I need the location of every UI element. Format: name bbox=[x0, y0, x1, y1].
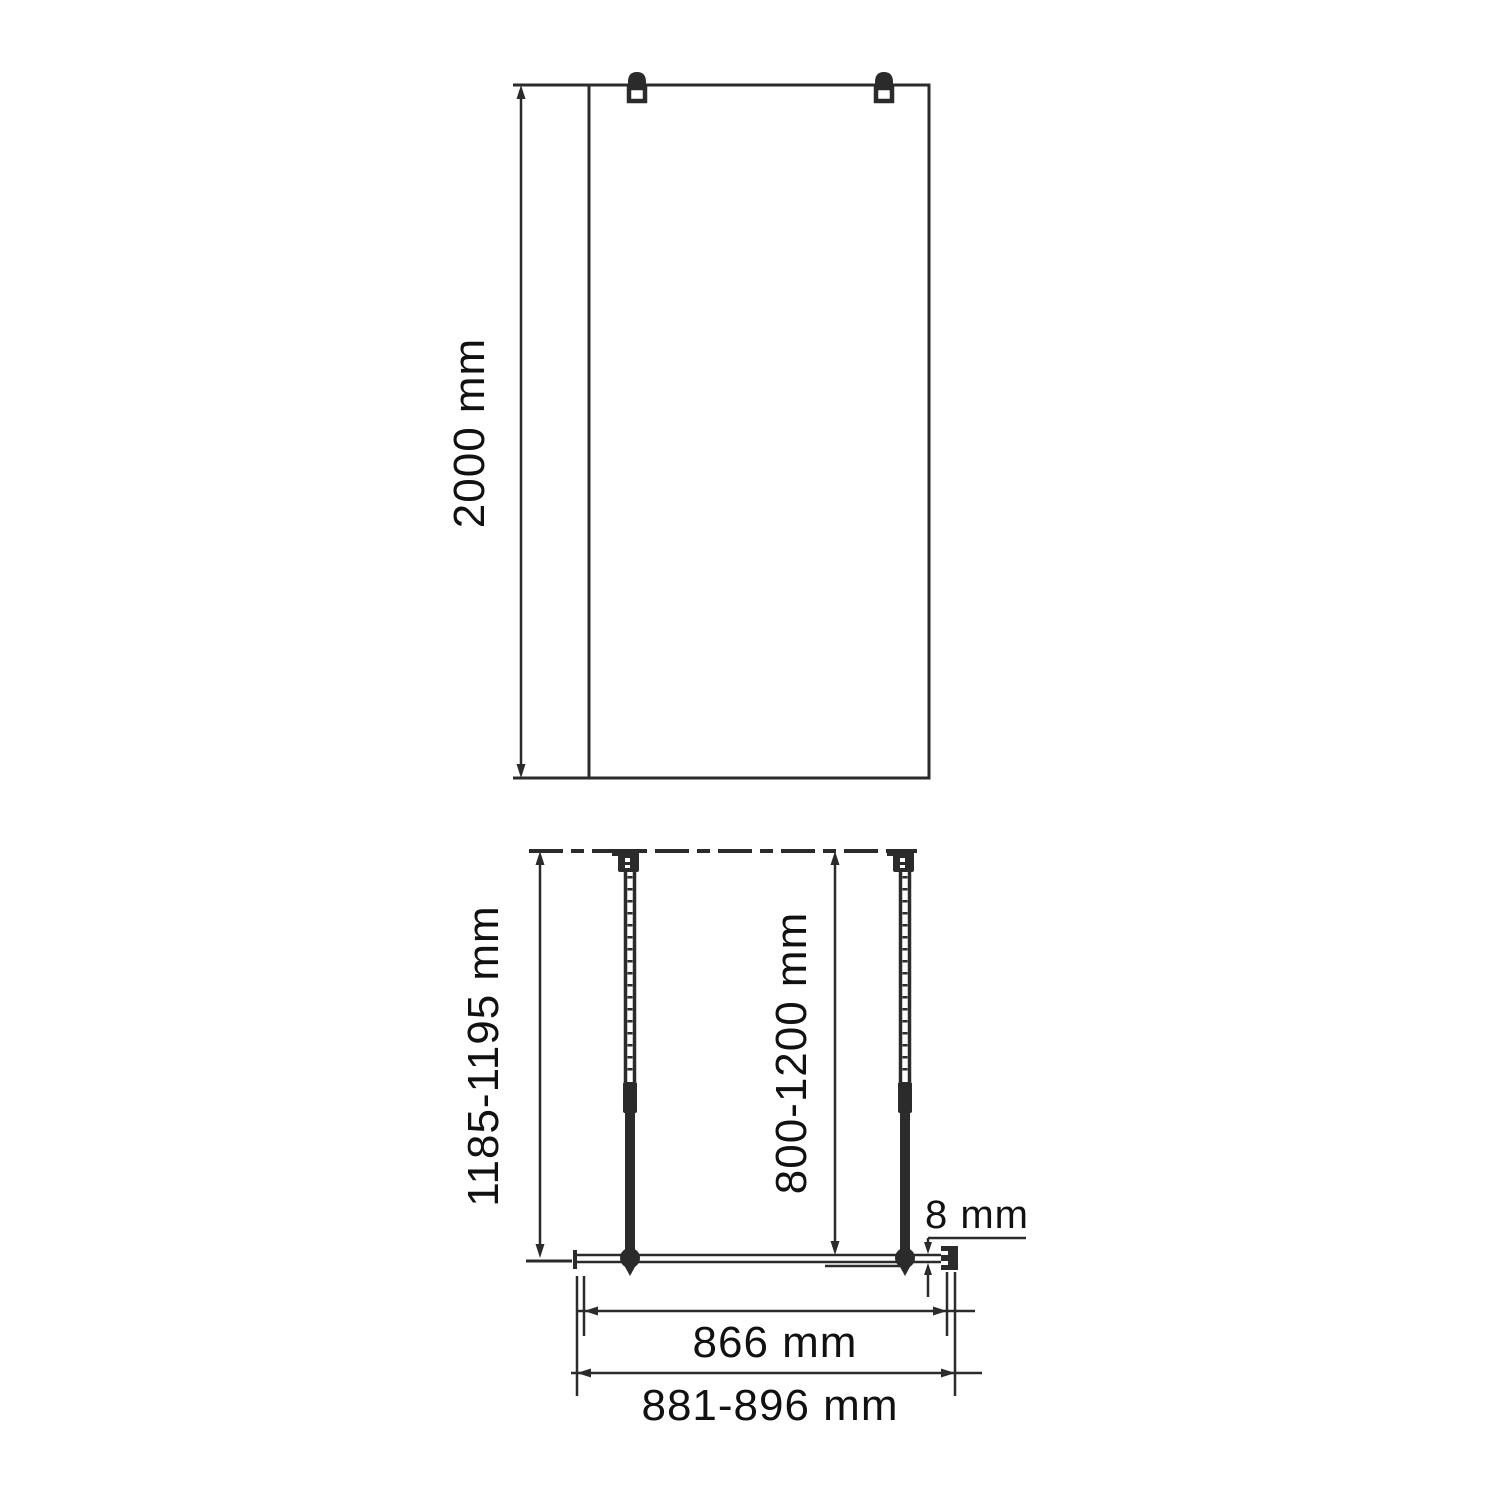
glass-width-dimension: 866 mm bbox=[578, 1272, 975, 1367]
wall-bracket-left bbox=[612, 849, 639, 872]
arrow-up-icon bbox=[536, 851, 545, 865]
bar-coupler bbox=[898, 1082, 912, 1113]
glass-width-label: 866 mm bbox=[693, 1318, 858, 1367]
support-bar-left bbox=[620, 872, 640, 1276]
bar-rod bbox=[900, 1113, 910, 1258]
height-dimension-label: 2000 mm bbox=[445, 338, 494, 528]
arrow-down-icon bbox=[924, 1242, 932, 1254]
depth-dimension-label: 1185-1195 mm bbox=[459, 905, 508, 1206]
wall-clamp-right bbox=[875, 72, 893, 101]
arrow-up-icon bbox=[517, 85, 526, 99]
drawing-canvas: 2000 mm bbox=[0, 0, 1500, 1500]
support-bar-right bbox=[895, 872, 915, 1276]
bar-coupler bbox=[623, 1082, 637, 1113]
front-view: 2000 mm bbox=[445, 72, 929, 778]
arrow-down-icon bbox=[536, 1244, 545, 1258]
clamp-knob-icon bbox=[628, 72, 646, 85]
glass-thickness-label: 8 mm bbox=[925, 1193, 1029, 1237]
bar-length-dimension: 800-1200 mm bbox=[767, 851, 840, 1255]
glass-end-cap bbox=[573, 1250, 577, 1269]
install-width-label: 881-896 mm bbox=[641, 1381, 898, 1430]
wall-clamp-left bbox=[628, 72, 646, 101]
arrow-right-icon bbox=[933, 1307, 947, 1316]
arrow-left-icon bbox=[577, 1369, 591, 1378]
clamp-body-icon bbox=[876, 88, 892, 101]
depth-dimension-left: 1185-1195 mm bbox=[459, 851, 572, 1261]
glass-panel-front bbox=[589, 85, 929, 778]
glass-thickness-callout: 8 mm bbox=[924, 1193, 1029, 1297]
wall-bracket-right bbox=[887, 849, 914, 872]
arrow-left-icon bbox=[584, 1307, 598, 1316]
bar-rod bbox=[625, 1113, 635, 1258]
clamp-body-icon bbox=[629, 88, 645, 101]
bar-length-dimension-label: 800-1200 mm bbox=[767, 912, 816, 1194]
arrow-right-icon bbox=[941, 1369, 955, 1378]
arrow-up-icon bbox=[831, 851, 840, 865]
wall-profile bbox=[941, 1246, 958, 1270]
height-dimension: 2000 mm bbox=[445, 85, 526, 778]
plan-view: 1185-1195 mm 800-1200 mm 8 mm 866 mm bbox=[459, 849, 1029, 1430]
arrow-down-icon bbox=[517, 764, 526, 778]
technical-drawing: 2000 mm bbox=[0, 0, 1500, 1500]
clamp-knob-icon bbox=[875, 72, 893, 85]
arrow-down-icon bbox=[831, 1241, 840, 1255]
arrow-up-icon bbox=[924, 1263, 932, 1275]
